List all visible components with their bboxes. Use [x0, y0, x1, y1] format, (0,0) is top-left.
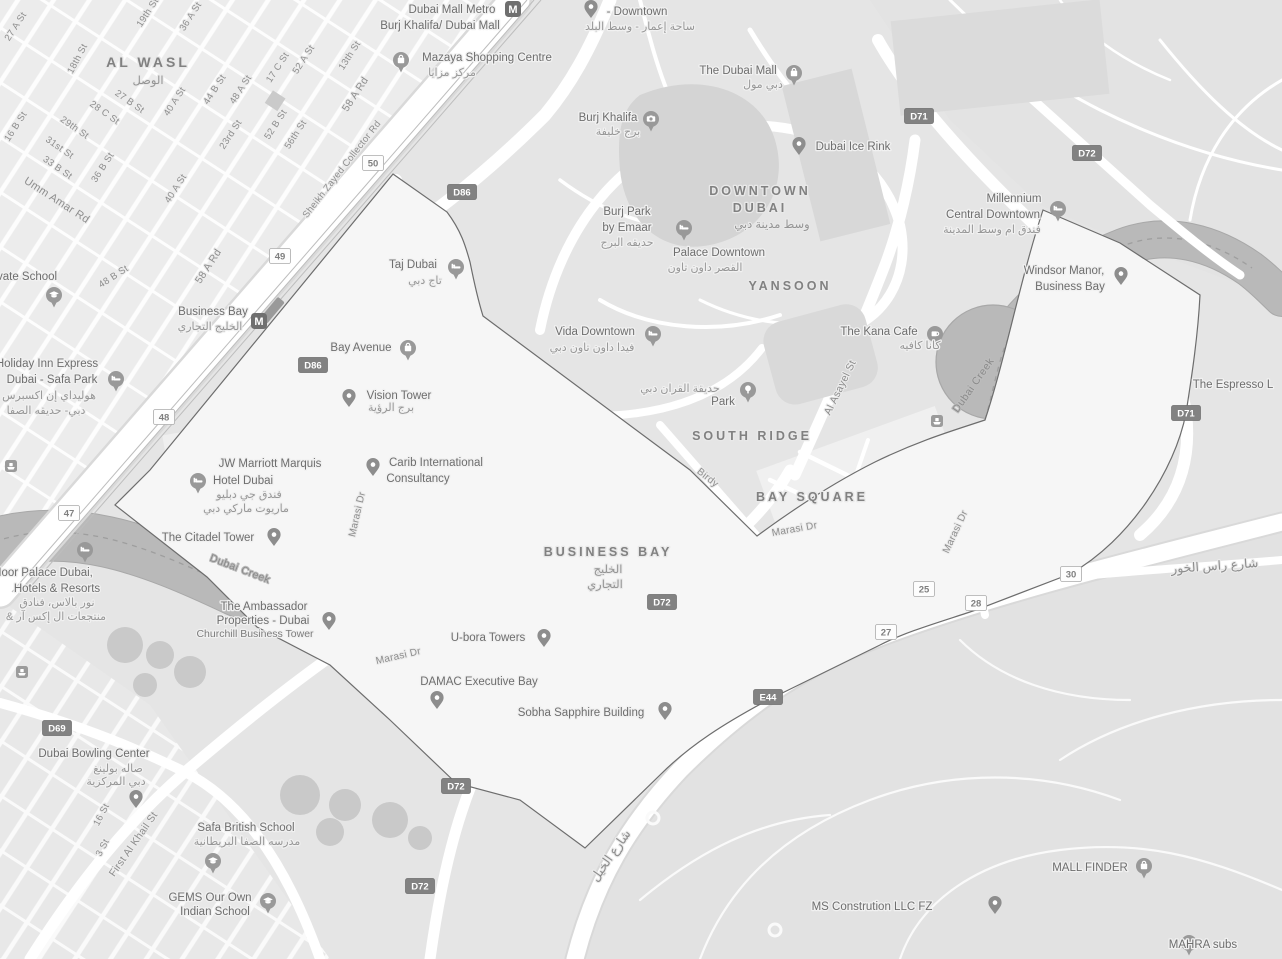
area-label-business-bay: BUSINESS BAY: [544, 545, 673, 559]
svg-text:48: 48: [159, 413, 170, 424]
svg-text:D72: D72: [411, 882, 428, 893]
poi-label-vision-tower[interactable]: برج الرؤية: [368, 402, 414, 414]
poi-label-quran-park[interactable]: Park: [711, 396, 735, 408]
route-badge: 30: [1060, 567, 1081, 582]
poi-label-the-espresso-lab[interactable]: The Espresso L: [1193, 379, 1274, 391]
poi-label-dubai-bowling-center[interactable]: Dubai Bowling Center: [38, 748, 149, 760]
poi-label-palace-downtown[interactable]: القصر داون تاون: [668, 262, 743, 274]
poi-label-the-dubai-mall[interactable]: دبي مول: [743, 79, 783, 91]
area-label-al-wasl: الوصل: [132, 75, 163, 88]
svg-text:D71: D71: [910, 112, 928, 123]
poi-label-burj-khalifa[interactable]: برج خليفة: [596, 126, 641, 138]
area-label-business-bay: التجاري: [587, 579, 623, 592]
poi-label-noor-palace[interactable]: & منتجعات ال إكس آر: [6, 609, 106, 623]
poi-label-noor-palace[interactable]: Hotels & Resorts: [14, 583, 101, 595]
route-badge: 48: [153, 410, 174, 425]
poi-label-emaar-square-downtown[interactable]: - Downtown: [607, 6, 668, 18]
poi-label-the-kana-cafe[interactable]: كانا كافيه: [899, 340, 941, 352]
poi-label-jw-marriott-marquis[interactable]: فندق جي دبليو: [215, 489, 282, 501]
svg-text:50: 50: [368, 159, 379, 170]
poi-label-gems-our-own-indian-school[interactable]: GEMS Our Own: [168, 892, 251, 904]
poi-label-ms-constrution[interactable]: MS Constrution LLC FZ: [812, 901, 933, 913]
poi-label-bay-avenue[interactable]: Bay Avenue: [330, 342, 391, 354]
poi-label-emaar-square-downtown[interactable]: ساحة إعمار - وسط البلد: [585, 21, 695, 33]
route-badge: D72: [442, 779, 471, 794]
route-badge: D72: [406, 879, 435, 894]
poi-label-safa-british-school[interactable]: Safa British School: [197, 822, 294, 834]
svg-text:D86: D86: [304, 361, 321, 372]
svg-text:E44: E44: [760, 693, 778, 704]
svg-text:28: 28: [971, 599, 982, 610]
route-badge: 28: [965, 596, 986, 611]
metro-icon[interactable]: [251, 313, 267, 329]
route-badge: 25: [913, 582, 934, 597]
poi-label-vida-downtown[interactable]: فيدا داون تاون دبي: [550, 342, 635, 354]
area-label-downtown-dubai: DUBAI: [733, 201, 788, 215]
map-canvas[interactable]: M: [0, 0, 1282, 959]
metro-icon[interactable]: [505, 1, 521, 17]
area-label-downtown-dubai: وسط مدينة دبي: [734, 219, 809, 232]
poi-label-burj-park[interactable]: by Emaar: [602, 222, 651, 234]
poi-label-business-bay-metro[interactable]: Business Bay: [178, 306, 248, 318]
svg-text:D69: D69: [48, 724, 65, 735]
poi-label-quran-park[interactable]: حديقة القران دبي: [640, 383, 720, 395]
ferry-icon[interactable]: [931, 415, 943, 427]
area-label-business-bay: الخليج: [594, 564, 623, 576]
ferry-icon[interactable]: [5, 460, 17, 472]
poi-label-jw-marriott-marquis[interactable]: JW Marriott Marquis: [219, 458, 322, 470]
route-badge: 47: [58, 506, 79, 521]
poi-label-ambassador-properties[interactable]: Properties - Dubai: [217, 615, 310, 627]
svg-text:D72: D72: [447, 782, 464, 793]
poi-label-the-dubai-mall[interactable]: The Dubai Mall: [699, 65, 776, 77]
route-badge: D86: [448, 185, 477, 200]
poi-label-taj-dubai[interactable]: Taj Dubai: [389, 259, 437, 271]
poi-label-dubai-mall-metro[interactable]: Burj Khalifa/ Dubai Mall: [380, 20, 500, 32]
area-label-bay-square: BAY SQUARE: [756, 490, 868, 504]
svg-text:25: 25: [919, 585, 930, 596]
poi-label-damac-executive-bay[interactable]: DAMAC Executive Bay: [420, 676, 538, 688]
poi-label-ambassador-properties[interactable]: Churchill Business Tower: [196, 628, 314, 640]
poi-label-dubai-bowling-center[interactable]: دبي المركزية: [86, 776, 145, 788]
map-root: M: [0, 0, 1282, 959]
poi-label-dubai-bowling-center[interactable]: صاله بولينغ: [93, 763, 143, 775]
poi-label-millennium-central-downtown[interactable]: Millennium: [987, 193, 1042, 205]
poi-label-business-bay-metro[interactable]: الخليج التجاري: [178, 321, 243, 333]
poi-label-mazaya-shopping-centre[interactable]: Mazaya Shopping Centre: [422, 52, 552, 64]
poi-label-windsor-manor[interactable]: Business Bay: [1035, 281, 1105, 293]
route-badge: D69: [43, 721, 72, 736]
poi-label-private-school[interactable]: Private School: [0, 271, 57, 283]
route-badge: 49: [269, 249, 290, 264]
poi-label-ambassador-properties[interactable]: The Ambassador: [221, 601, 308, 613]
poi-label-holiday-inn-express[interactable]: Dubai - Safa Park: [7, 374, 98, 386]
poi-label-carib-international[interactable]: Carib International: [389, 457, 483, 469]
poi-label-burj-khalifa[interactable]: Burj Khalifa: [579, 112, 638, 124]
poi-label-mazaya-shopping-centre[interactable]: مركز مزايا: [428, 67, 476, 79]
poi-label-noor-palace[interactable]: نور بالاس، فنادق: [19, 597, 94, 609]
poi-label-vision-tower[interactable]: Vision Tower: [367, 390, 432, 402]
poi-label-the-kana-cafe[interactable]: The Kana Cafe: [840, 326, 917, 338]
svg-text:30: 30: [1066, 570, 1077, 581]
route-badge: E44: [754, 690, 783, 705]
route-badge: 27: [875, 625, 896, 640]
poi-label-jw-marriott-marquis[interactable]: Hotel Dubai: [213, 475, 273, 487]
poi-label-millennium-central-downtown[interactable]: Central Downtown: [946, 209, 1040, 221]
route-badge: D71: [1172, 406, 1201, 421]
poi-label-millennium-central-downtown[interactable]: فندق ام وسط المدينة: [943, 224, 1041, 236]
route-badge: D72: [1073, 146, 1102, 161]
poi-label-jw-marriott-marquis[interactable]: ماريوت ماركي دبي: [203, 503, 289, 515]
poi-label-mall-finder[interactable]: MALL FINDER: [1052, 862, 1128, 874]
poi-label-burj-park[interactable]: حديقه البرج: [600, 237, 653, 249]
poi-label-windsor-manor[interactable]: Windsor Manor,: [1024, 265, 1105, 277]
route-badge: D71: [905, 109, 934, 124]
svg-text:D86: D86: [453, 188, 470, 199]
poi-label-burj-park[interactable]: Burj Park: [603, 206, 651, 218]
ferry-icon[interactable]: [16, 666, 28, 678]
route-badge: 50: [362, 156, 383, 171]
area-label-downtown-dubai: DOWNTOWN: [709, 184, 811, 198]
poi-label-vida-downtown[interactable]: Vida Downtown: [555, 326, 635, 338]
poi-label-carib-international[interactable]: Consultancy: [386, 473, 450, 485]
area-label-yansoon: YANSOON: [748, 279, 831, 293]
poi-label-safa-british-school[interactable]: مدرسه الصفا البريطانية: [194, 836, 301, 848]
route-badge: D72: [648, 595, 677, 610]
poi-label-dubai-mall-metro[interactable]: Dubai Mall Metro: [409, 4, 496, 16]
poi-label-gems-our-own-indian-school[interactable]: Indian School: [180, 906, 250, 918]
poi-label-holiday-inn-express[interactable]: دبي- حديقه الصفا: [7, 405, 86, 417]
svg-text:D72: D72: [653, 598, 670, 609]
svg-text:D71: D71: [1177, 409, 1195, 420]
svg-text:47: 47: [64, 509, 75, 520]
poi-label-sobha-sapphire[interactable]: Sobha Sapphire Building: [518, 707, 645, 719]
svg-text:49: 49: [275, 252, 286, 263]
poi-label-noor-palace[interactable]: Noor Palace Dubai,: [0, 567, 93, 579]
area-label-al-wasl: AL WASL: [106, 54, 190, 70]
poi-label-u-bora-towers[interactable]: U-bora Towers: [451, 632, 526, 644]
poi-label-holiday-inn-express[interactable]: هوليداي إن اكسبرس: [2, 390, 96, 402]
svg-text:D72: D72: [1078, 149, 1095, 160]
poi-label-holiday-inn-express[interactable]: Holiday Inn Express: [0, 358, 98, 370]
poi-label-palace-downtown[interactable]: Palace Downtown: [673, 247, 765, 259]
poi-label-citadel-tower[interactable]: The Citadel Tower: [162, 532, 255, 544]
poi-label-mahra-substation[interactable]: MAHRA subs: [1169, 939, 1238, 951]
route-badge: D86: [299, 358, 328, 373]
svg-text:27: 27: [881, 628, 892, 639]
poi-label-dubai-ice-rink[interactable]: Dubai Ice Rink: [816, 141, 891, 153]
area-label-south-ridge: SOUTH RIDGE: [692, 429, 812, 443]
poi-label-taj-dubai[interactable]: تاج دبي: [408, 275, 442, 287]
